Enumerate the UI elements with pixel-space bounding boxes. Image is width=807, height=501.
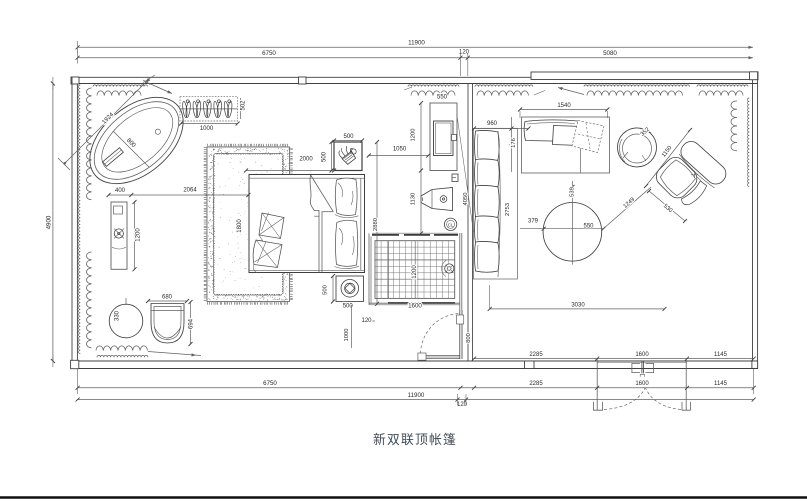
svg-text:3030: 3030 (571, 303, 585, 309)
svg-text:4900: 4900 (45, 215, 52, 229)
svg-text:5080: 5080 (603, 50, 617, 57)
svg-text:680: 680 (162, 295, 173, 301)
svg-text:550: 550 (583, 224, 594, 230)
svg-text:400: 400 (115, 188, 126, 194)
svg-text:1540: 1540 (557, 103, 571, 109)
svg-text:2880: 2880 (373, 218, 379, 231)
svg-text:1000: 1000 (200, 126, 214, 132)
svg-text:500: 500 (322, 151, 328, 162)
svg-text:2000: 2000 (299, 157, 313, 163)
svg-text:6750: 6750 (263, 380, 277, 387)
svg-text:379: 379 (528, 219, 539, 225)
svg-text:539: 539 (570, 187, 576, 197)
svg-text:500: 500 (343, 134, 354, 140)
svg-text:新双联顶帐篷: 新双联顶帐篷 (373, 432, 457, 447)
svg-text:1600: 1600 (635, 381, 649, 387)
svg-text:550: 550 (437, 95, 448, 101)
svg-text:500: 500 (322, 285, 328, 295)
svg-text:120: 120 (457, 402, 468, 408)
svg-text:2285: 2285 (529, 381, 543, 387)
svg-text:11900: 11900 (408, 392, 425, 399)
svg-text:2064: 2064 (183, 188, 197, 194)
svg-text:1200: 1200 (136, 228, 142, 242)
svg-text:1000: 1000 (344, 329, 350, 342)
svg-text:2285: 2285 (529, 352, 543, 358)
svg-text:4050: 4050 (463, 193, 469, 206)
svg-text:120: 120 (459, 50, 470, 56)
svg-text:1600: 1600 (408, 303, 422, 310)
svg-text:1800: 1800 (237, 219, 243, 233)
svg-text:960: 960 (487, 121, 498, 127)
svg-text:120: 120 (361, 318, 372, 324)
svg-text:502: 502 (241, 100, 247, 111)
svg-text:1200: 1200 (412, 265, 418, 279)
svg-text:1130: 1130 (411, 193, 417, 205)
svg-text:1600: 1600 (635, 352, 649, 358)
svg-text:1050: 1050 (393, 147, 407, 153)
svg-text:6750: 6750 (262, 50, 276, 57)
svg-text:2753: 2753 (505, 203, 511, 216)
svg-text:800: 800 (466, 333, 472, 343)
svg-text:330: 330 (115, 310, 121, 321)
svg-text:694: 694 (189, 318, 195, 329)
svg-text:176: 176 (511, 138, 517, 148)
svg-text:530: 530 (662, 203, 673, 214)
svg-text:11900: 11900 (408, 40, 425, 47)
svg-text:1145: 1145 (714, 381, 728, 387)
svg-text:1145: 1145 (714, 352, 728, 358)
svg-text:1150: 1150 (661, 145, 673, 159)
svg-text:CL: CL (448, 222, 454, 227)
svg-text:1200: 1200 (411, 129, 417, 142)
svg-text:1249: 1249 (623, 197, 637, 210)
